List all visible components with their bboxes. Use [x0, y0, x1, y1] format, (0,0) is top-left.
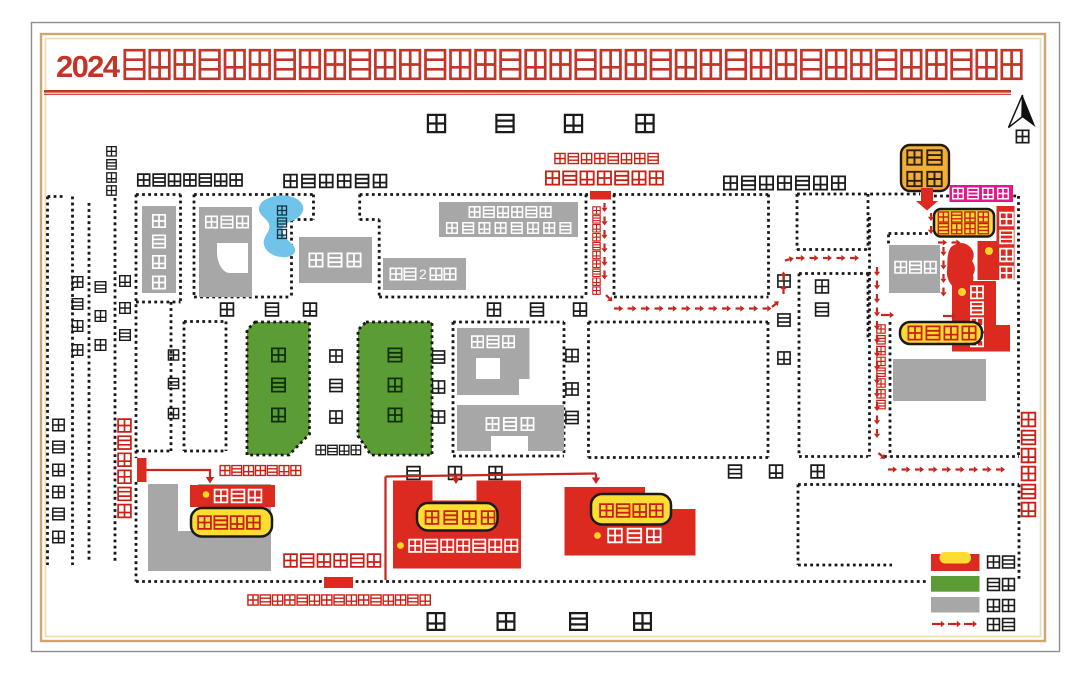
svg-text:2: 2: [419, 266, 427, 282]
svg-text:2024: 2024: [56, 49, 121, 84]
